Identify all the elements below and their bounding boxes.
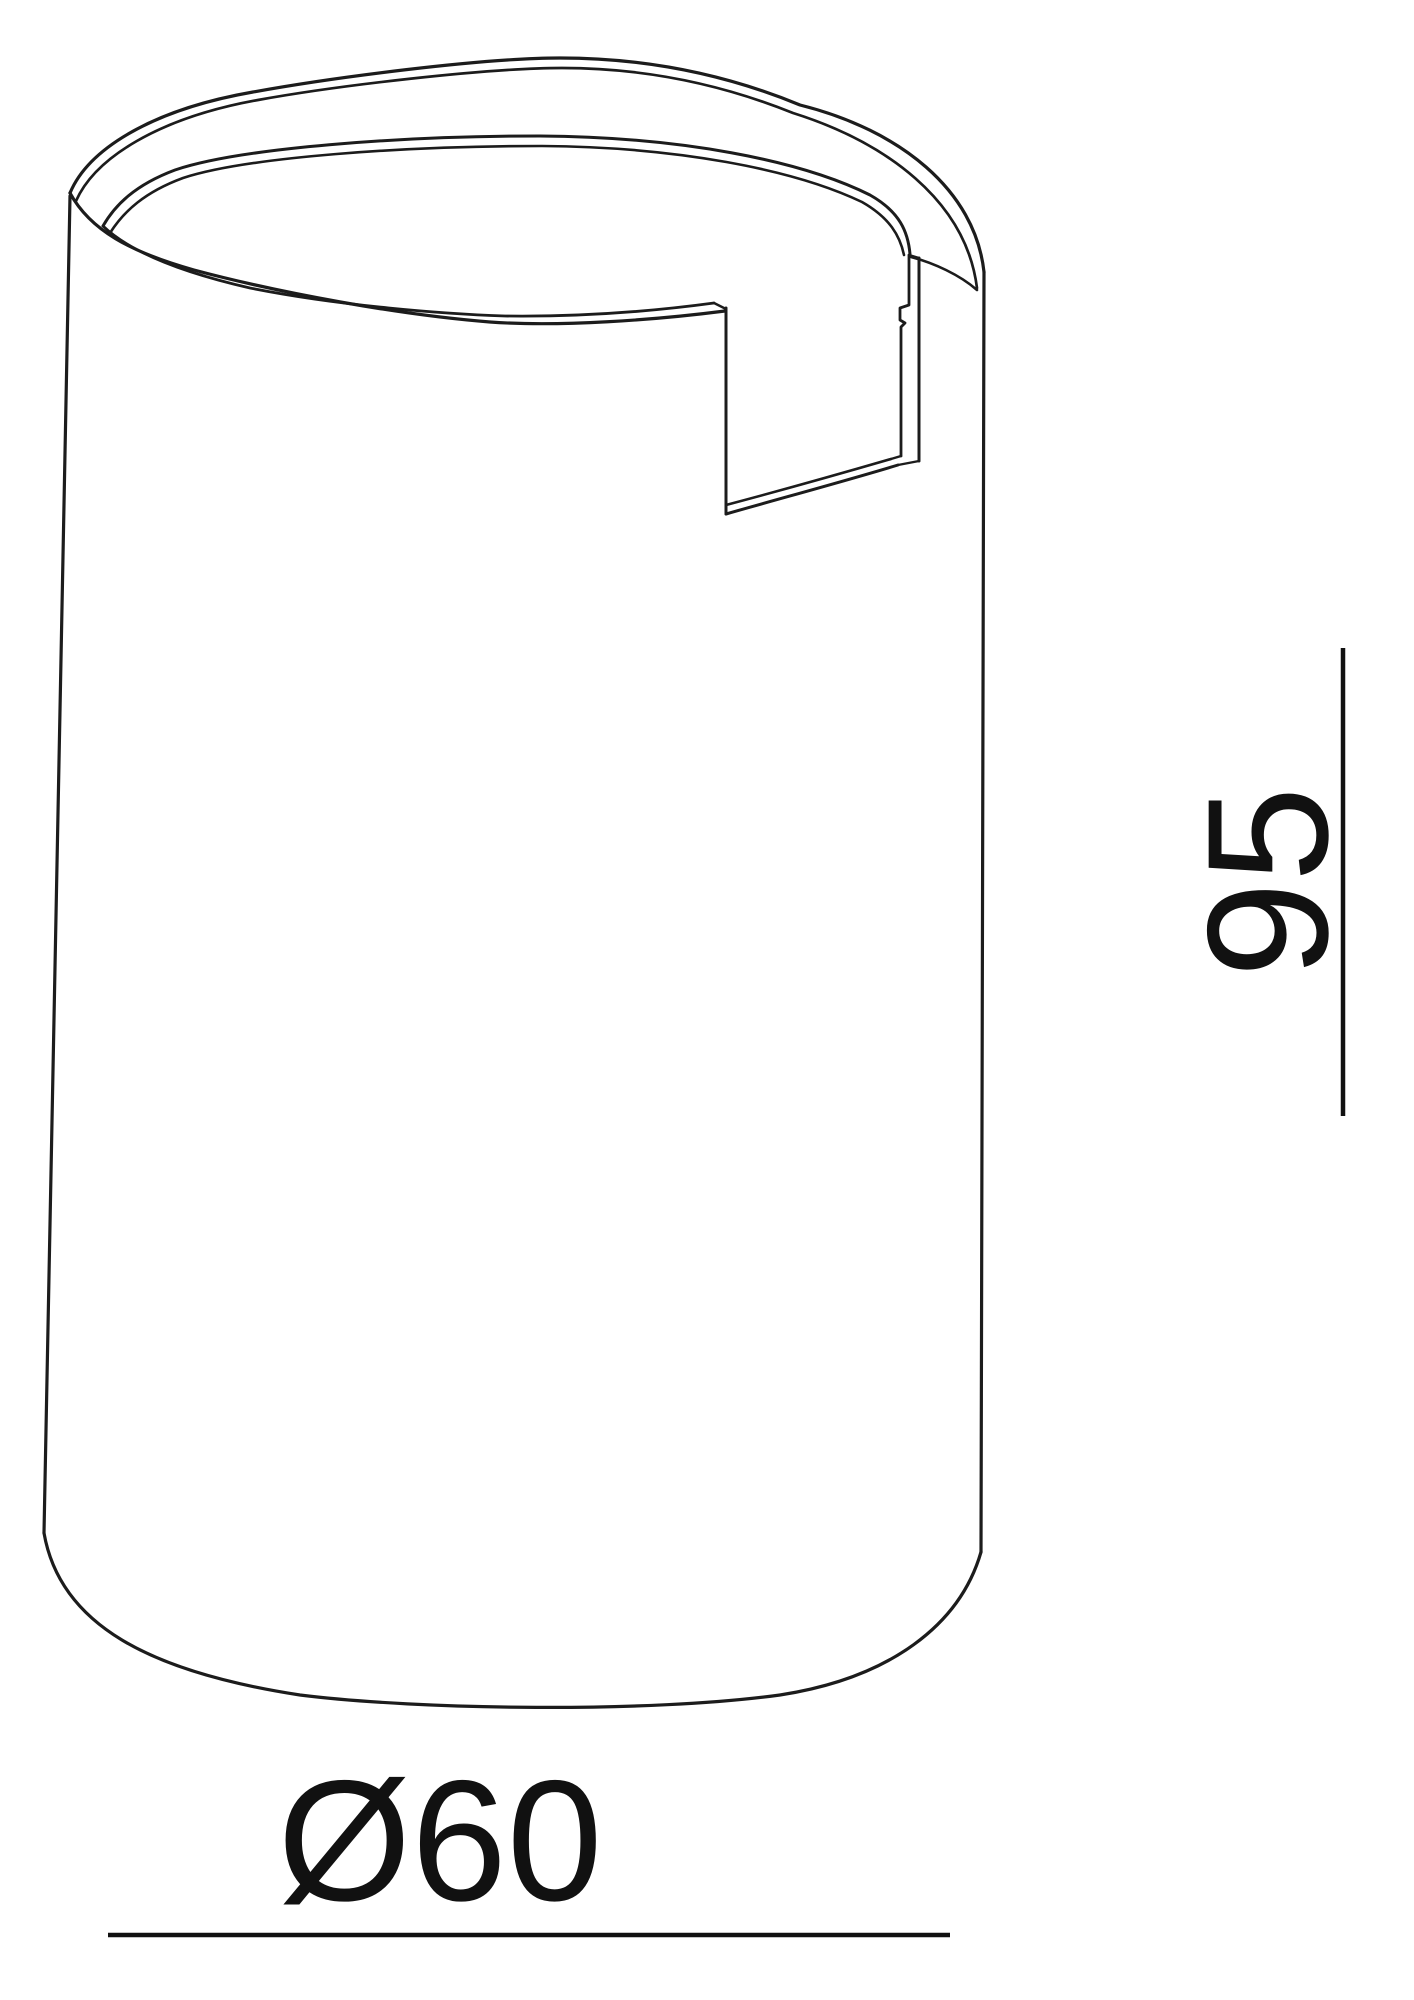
height-dimension-label: 95 <box>1172 786 1364 977</box>
bore-rim-back-chamfer <box>110 146 904 255</box>
notch-bottom-inner-edge <box>726 459 891 505</box>
notch-bottom-outer-edge <box>726 465 898 514</box>
notch-bottom-right-corner-b <box>898 461 919 465</box>
drawing-canvas: 95 Ø60 <box>0 0 1414 2000</box>
dimension-annotations: 95 Ø60 <box>108 648 1364 1937</box>
cylinder-outline <box>44 58 984 1707</box>
cylinder-bottom-arc <box>44 1533 981 1707</box>
notch-right-inner-edge-with-step <box>900 255 909 456</box>
outer-rim-back-edge <box>70 58 984 272</box>
front-rim-cut-tip <box>714 303 726 309</box>
cylinder-left-edge <box>44 196 70 1533</box>
diameter-dimension-label: Ø60 <box>277 1745 602 1937</box>
technical-drawing: 95 Ø60 <box>0 0 1414 2000</box>
front-rim-outer-edge <box>70 193 725 324</box>
notch-bottom-right-corner-a <box>891 456 901 459</box>
cylinder-right-edge <box>981 272 984 1552</box>
bore-rim-back-edge <box>103 136 910 254</box>
rim-segment-right-of-notch <box>911 257 977 290</box>
